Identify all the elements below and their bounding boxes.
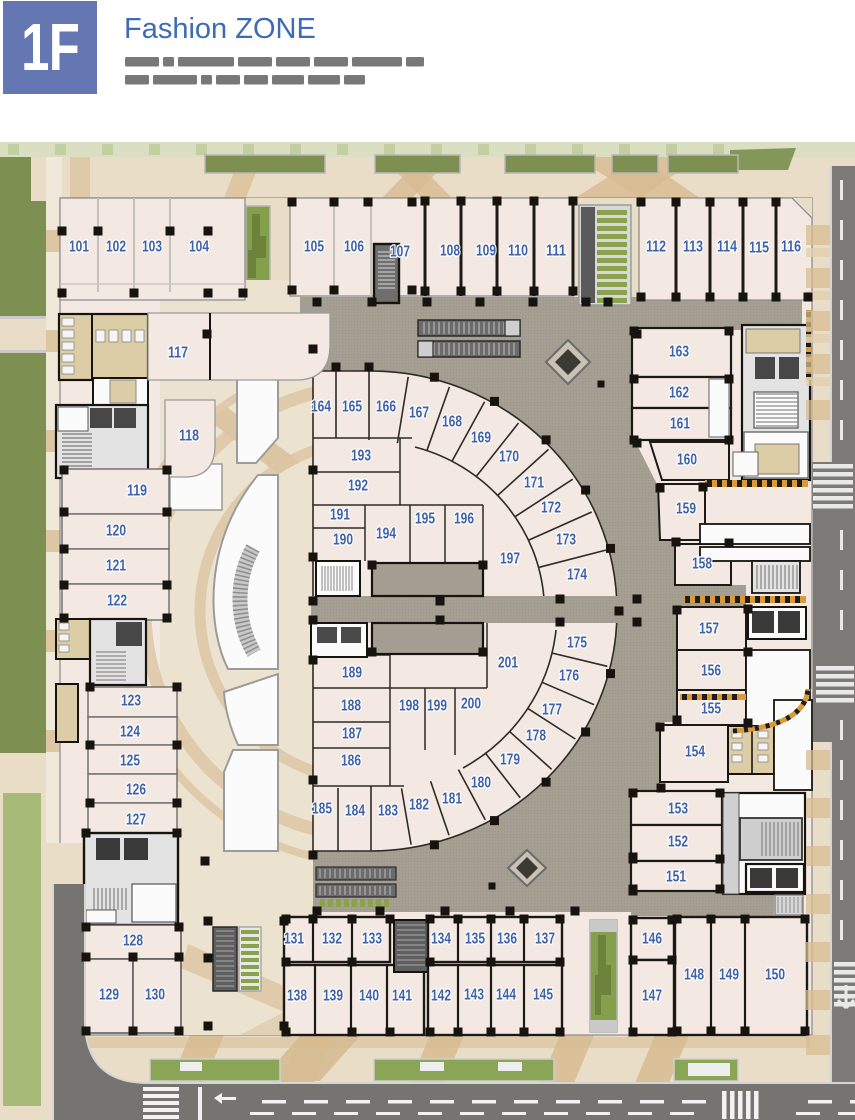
svg-text:193: 193 bbox=[351, 448, 371, 465]
svg-text:146: 146 bbox=[642, 931, 662, 948]
svg-text:198: 198 bbox=[399, 698, 419, 715]
svg-text:156: 156 bbox=[701, 663, 721, 680]
svg-text:119: 119 bbox=[127, 483, 147, 500]
svg-text:107: 107 bbox=[390, 244, 410, 261]
svg-text:194: 194 bbox=[376, 526, 396, 543]
svg-text:129: 129 bbox=[99, 987, 119, 1004]
svg-text:164: 164 bbox=[311, 399, 331, 416]
svg-text:137: 137 bbox=[535, 931, 555, 948]
svg-text:152: 152 bbox=[668, 834, 688, 851]
svg-text:133: 133 bbox=[362, 931, 382, 948]
svg-text:136: 136 bbox=[497, 931, 517, 948]
svg-text:108: 108 bbox=[440, 243, 460, 260]
svg-text:177: 177 bbox=[542, 702, 562, 719]
svg-text:145: 145 bbox=[533, 987, 553, 1004]
svg-text:106: 106 bbox=[344, 239, 364, 256]
svg-text:157: 157 bbox=[699, 621, 719, 638]
svg-text:197: 197 bbox=[500, 551, 520, 568]
svg-text:188: 188 bbox=[341, 698, 361, 715]
svg-text:142: 142 bbox=[431, 988, 451, 1005]
svg-text:132: 132 bbox=[322, 931, 342, 948]
svg-text:122: 122 bbox=[107, 593, 127, 610]
svg-text:163: 163 bbox=[669, 344, 689, 361]
svg-text:111: 111 bbox=[546, 243, 566, 260]
svg-text:101: 101 bbox=[69, 239, 89, 256]
svg-text:118: 118 bbox=[179, 428, 199, 445]
svg-text:116: 116 bbox=[781, 239, 801, 256]
svg-text:134: 134 bbox=[431, 931, 451, 948]
svg-text:182: 182 bbox=[409, 797, 429, 814]
svg-text:121: 121 bbox=[106, 558, 126, 575]
svg-text:179: 179 bbox=[500, 752, 520, 769]
svg-text:175: 175 bbox=[567, 635, 587, 652]
svg-text:104: 104 bbox=[189, 239, 209, 256]
svg-text:135: 135 bbox=[465, 931, 485, 948]
svg-text:192: 192 bbox=[348, 478, 368, 495]
svg-text:191: 191 bbox=[330, 507, 350, 524]
svg-text:155: 155 bbox=[701, 701, 721, 718]
svg-text:180: 180 bbox=[471, 775, 491, 792]
svg-text:141: 141 bbox=[392, 988, 412, 1005]
svg-text:184: 184 bbox=[345, 803, 365, 820]
svg-text:186: 186 bbox=[341, 753, 361, 770]
svg-text:161: 161 bbox=[670, 416, 690, 433]
svg-text:189: 189 bbox=[342, 665, 362, 682]
svg-text:158: 158 bbox=[692, 556, 712, 573]
svg-text:124: 124 bbox=[120, 724, 140, 741]
svg-text:162: 162 bbox=[669, 385, 689, 402]
svg-text:148: 148 bbox=[684, 967, 704, 984]
svg-text:143: 143 bbox=[464, 987, 484, 1004]
svg-text:140: 140 bbox=[359, 988, 379, 1005]
svg-text:195: 195 bbox=[415, 511, 435, 528]
svg-text:117: 117 bbox=[168, 345, 188, 362]
svg-text:127: 127 bbox=[126, 812, 146, 829]
svg-text:103: 103 bbox=[142, 239, 162, 256]
svg-text:153: 153 bbox=[668, 801, 688, 818]
svg-text:200: 200 bbox=[461, 696, 481, 713]
svg-text:174: 174 bbox=[567, 567, 587, 584]
svg-text:199: 199 bbox=[427, 698, 447, 715]
svg-text:144: 144 bbox=[496, 987, 516, 1004]
svg-text:102: 102 bbox=[106, 239, 126, 256]
svg-text:110: 110 bbox=[508, 243, 528, 260]
svg-text:128: 128 bbox=[123, 933, 143, 950]
svg-text:120: 120 bbox=[106, 523, 126, 540]
svg-text:151: 151 bbox=[666, 869, 686, 886]
svg-text:123: 123 bbox=[121, 693, 141, 710]
svg-text:183: 183 bbox=[378, 803, 398, 820]
svg-text:147: 147 bbox=[642, 988, 662, 1005]
svg-text:159: 159 bbox=[676, 501, 696, 518]
svg-text:126: 126 bbox=[126, 782, 146, 799]
svg-text:130: 130 bbox=[145, 987, 165, 1004]
svg-text:173: 173 bbox=[556, 532, 576, 549]
svg-text:154: 154 bbox=[685, 744, 705, 761]
svg-text:169: 169 bbox=[471, 430, 491, 447]
svg-text:168: 168 bbox=[442, 414, 462, 431]
svg-text:150: 150 bbox=[765, 967, 785, 984]
svg-text:171: 171 bbox=[524, 475, 544, 492]
svg-text:160: 160 bbox=[677, 452, 697, 469]
svg-text:105: 105 bbox=[304, 239, 324, 256]
svg-text:176: 176 bbox=[559, 668, 579, 685]
svg-text:181: 181 bbox=[442, 791, 462, 808]
svg-text:170: 170 bbox=[499, 449, 519, 466]
svg-text:165: 165 bbox=[342, 399, 362, 416]
svg-text:187: 187 bbox=[342, 726, 362, 743]
svg-text:201: 201 bbox=[498, 655, 518, 672]
svg-text:190: 190 bbox=[333, 532, 353, 549]
svg-text:113: 113 bbox=[683, 239, 703, 256]
svg-text:138: 138 bbox=[287, 988, 307, 1005]
svg-text:172: 172 bbox=[541, 500, 561, 517]
svg-text:178: 178 bbox=[526, 728, 546, 745]
svg-text:167: 167 bbox=[409, 405, 429, 422]
svg-text:139: 139 bbox=[323, 988, 343, 1005]
svg-text:125: 125 bbox=[120, 753, 140, 770]
svg-text:112: 112 bbox=[646, 239, 666, 256]
svg-text:166: 166 bbox=[376, 399, 396, 416]
svg-text:185: 185 bbox=[312, 801, 332, 818]
svg-text:114: 114 bbox=[717, 239, 737, 256]
svg-text:109: 109 bbox=[476, 243, 496, 260]
svg-text:115: 115 bbox=[749, 240, 769, 257]
svg-text:131: 131 bbox=[284, 931, 304, 948]
svg-text:196: 196 bbox=[454, 511, 474, 528]
svg-text:149: 149 bbox=[719, 967, 739, 984]
